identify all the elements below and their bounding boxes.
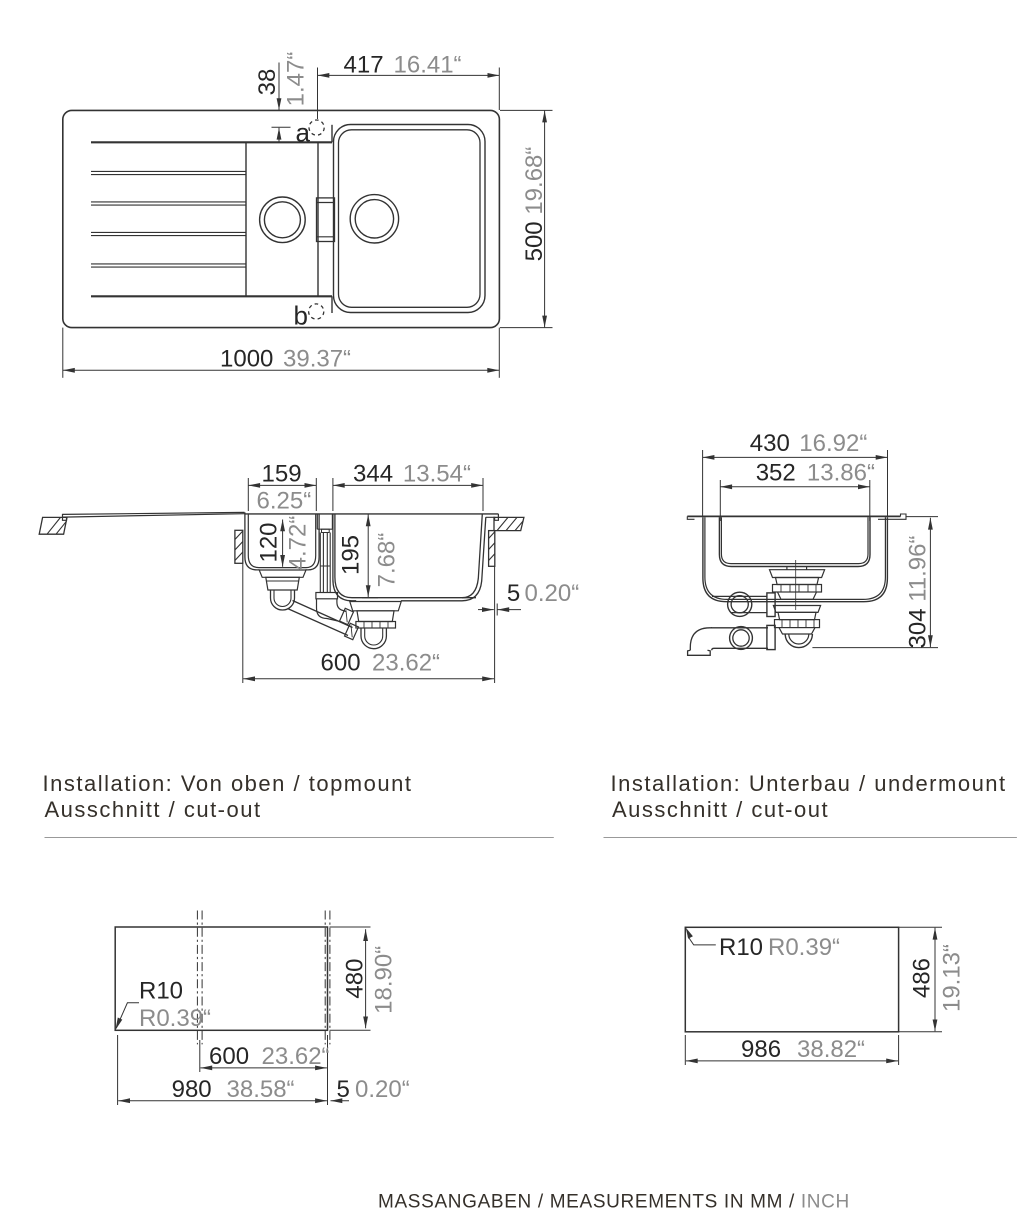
- svg-text:13.86“: 13.86“: [807, 459, 875, 486]
- svg-text:352: 352: [756, 459, 796, 486]
- svg-text:R10: R10: [719, 934, 763, 961]
- svg-text:18.90“: 18.90“: [371, 946, 398, 1014]
- svg-text:5: 5: [507, 580, 520, 607]
- svg-text:16.41“: 16.41“: [394, 51, 462, 78]
- svg-text:430: 430: [750, 430, 790, 457]
- svg-text:Installation: Unterbau / under: Installation: Unterbau / undermount: [611, 771, 1007, 796]
- svg-text:5: 5: [337, 1076, 350, 1103]
- svg-text:500 19.68“: 500 19.68“: [521, 147, 548, 262]
- svg-text:Ausschnitt / cut-out: Ausschnitt / cut-out: [612, 797, 829, 822]
- svg-text:38.58“: 38.58“: [227, 1076, 295, 1103]
- svg-text:986: 986: [741, 1036, 781, 1063]
- svg-text:344: 344: [353, 461, 393, 488]
- svg-text:980: 980: [172, 1076, 212, 1103]
- svg-text:7.68“: 7.68“: [374, 533, 401, 588]
- svg-text:1.47“: 1.47“: [283, 52, 310, 107]
- svg-text:38: 38: [254, 69, 281, 96]
- svg-text:MASSANGABEN / MEASUREMENTS IN: MASSANGABEN / MEASUREMENTS IN MM / INCH: [378, 1192, 850, 1213]
- svg-text:1000: 1000: [220, 346, 273, 373]
- svg-text:23.62“: 23.62“: [262, 1043, 330, 1070]
- svg-text:R0.39“: R0.39“: [139, 1005, 211, 1032]
- svg-text:417: 417: [344, 51, 384, 78]
- svg-text:486: 486: [909, 958, 936, 998]
- svg-text:b: b: [294, 301, 308, 331]
- svg-text:600: 600: [209, 1043, 249, 1070]
- svg-text:600: 600: [321, 650, 361, 677]
- svg-text:13.54“: 13.54“: [403, 461, 471, 488]
- svg-text:19.13“: 19.13“: [939, 944, 966, 1012]
- svg-text:0.20“: 0.20“: [355, 1076, 410, 1103]
- svg-text:480: 480: [342, 959, 369, 999]
- svg-text:R0.39“: R0.39“: [768, 934, 840, 961]
- svg-text:16.92“: 16.92“: [799, 430, 867, 457]
- svg-text:195: 195: [338, 535, 365, 575]
- svg-text:38.82“: 38.82“: [797, 1036, 865, 1063]
- svg-text:Installation: Von oben / topmo: Installation: Von oben / topmount: [43, 771, 413, 796]
- svg-text:304 11.96“: 304 11.96“: [905, 536, 932, 649]
- svg-text:a: a: [296, 118, 311, 148]
- svg-text:23.62“: 23.62“: [372, 650, 440, 677]
- svg-text:4.72“: 4.72“: [285, 516, 312, 571]
- svg-text:39.37“: 39.37“: [283, 346, 351, 373]
- svg-text:120: 120: [256, 522, 283, 562]
- svg-text:159: 159: [262, 461, 302, 488]
- svg-text:6.25“: 6.25“: [257, 488, 312, 515]
- svg-text:Ausschnitt / cut-out: Ausschnitt / cut-out: [45, 797, 262, 822]
- svg-text:R10: R10: [139, 978, 183, 1005]
- svg-text:0.20“: 0.20“: [525, 580, 580, 607]
